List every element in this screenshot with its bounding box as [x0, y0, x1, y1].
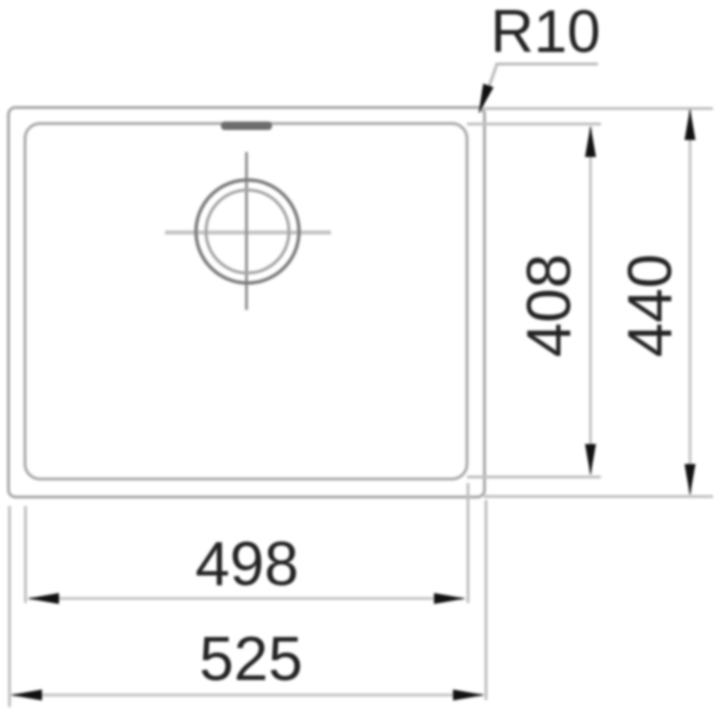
svg-text:525: 525: [199, 625, 302, 694]
svg-text:440: 440: [616, 254, 685, 357]
svg-text:498: 498: [195, 530, 298, 599]
svg-text:R10: R10: [490, 0, 600, 65]
svg-text:408: 408: [515, 254, 584, 357]
